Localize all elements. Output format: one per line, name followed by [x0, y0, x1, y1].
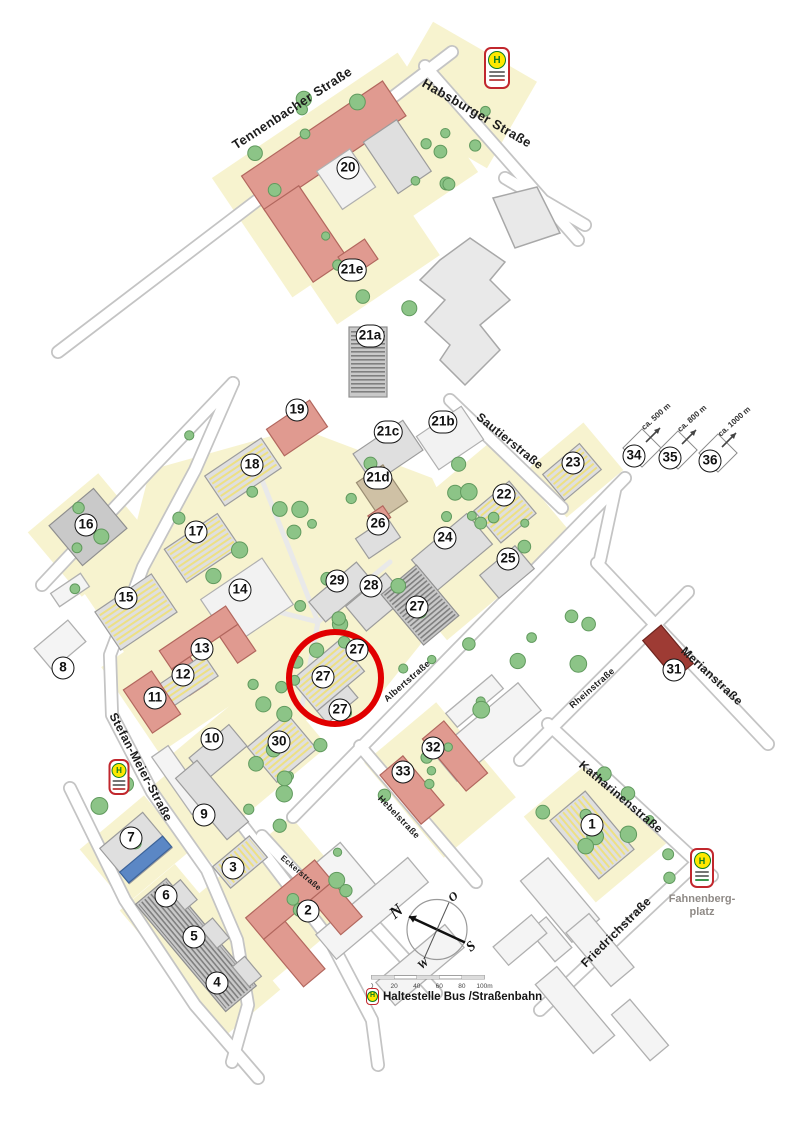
stop-habsburger: H	[484, 47, 510, 89]
building-marker-21a: 21a	[356, 325, 385, 348]
stop-h-icon: H	[112, 763, 127, 778]
building-marker-8: 8	[52, 657, 75, 680]
stop-h-icon: H	[488, 51, 506, 69]
building-marker-32: 32	[422, 737, 445, 760]
stop-h-icon: H	[694, 852, 711, 869]
building-marker-24: 24	[434, 527, 457, 550]
svg-text:S: S	[464, 939, 480, 956]
svg-text:N: N	[384, 900, 407, 924]
building-marker-36: 36	[699, 450, 722, 473]
stop-caption-line2: platz	[669, 906, 736, 919]
building-marker-6: 6	[155, 885, 178, 908]
svg-text:W: W	[414, 954, 432, 972]
building-marker-10: 10	[201, 728, 224, 751]
building-marker-14: 14	[229, 579, 252, 602]
building-marker-21e: 21e	[338, 259, 367, 282]
building-marker-29: 29	[326, 570, 349, 593]
building-marker-34: 34	[623, 445, 646, 468]
building-marker-21d: 21d	[363, 467, 392, 490]
stop-caption-fahnenbergplatz: Fahnenberg- platz	[669, 893, 736, 919]
building-marker-31: 31	[663, 659, 686, 682]
stop-sign-text-line	[113, 788, 126, 790]
stop-sign-text-line	[113, 784, 126, 786]
building-marker-5: 5	[183, 926, 206, 949]
compass-rose: NOSW	[377, 875, 497, 990]
campus-map: Tennenbacher StraßeHabsburger StraßeSaut…	[0, 0, 794, 1123]
building-marker-25: 25	[497, 548, 520, 571]
building-marker-11: 11	[144, 687, 167, 710]
building-marker-27: 27	[406, 596, 429, 619]
building-marker-35: 35	[659, 447, 682, 470]
building-marker-33: 33	[392, 761, 415, 784]
building-marker-3: 3	[222, 857, 245, 880]
building-marker-18: 18	[241, 454, 264, 477]
stop-fahnenbergplatz: H	[690, 848, 714, 888]
building-marker-27: 27	[346, 639, 369, 662]
bus-stop-icon: H	[366, 988, 379, 1005]
stop-sign-text-line	[695, 879, 709, 881]
building-marker-23: 23	[562, 452, 585, 475]
building-marker-30: 30	[268, 731, 291, 754]
stop-caption-line1: Fahnenberg-	[669, 893, 736, 906]
building-marker-4: 4	[206, 972, 229, 995]
stop-sign-text-line	[113, 780, 126, 782]
stop-sign-text-line	[489, 75, 505, 77]
building-marker-21b: 21b	[428, 411, 457, 434]
stop-sign-text-line	[695, 871, 709, 873]
building-marker-17: 17	[185, 521, 208, 544]
building-marker-28: 28	[360, 575, 383, 598]
legend-label: Haltestelle Bus /Straßenbahn	[383, 991, 542, 1003]
legend: H Haltestelle Bus /Straßenbahn	[366, 988, 542, 1005]
building-marker-9: 9	[193, 804, 216, 827]
stop-sign-text-line	[489, 71, 505, 73]
building-marker-7: 7	[120, 827, 143, 850]
building-marker-27: 27	[312, 666, 335, 689]
building-marker-2: 2	[297, 900, 320, 923]
building-marker-1: 1	[581, 814, 604, 837]
stop-sign-text-line	[489, 79, 505, 81]
building-marker-20: 20	[337, 157, 360, 180]
building-marker-19: 19	[286, 399, 309, 422]
stop-stefan-meier: H	[109, 759, 130, 795]
building-marker-22: 22	[493, 484, 516, 507]
building-marker-21c: 21c	[374, 421, 403, 444]
building-marker-27: 27	[329, 699, 352, 722]
building-marker-16: 16	[75, 514, 98, 537]
building-marker-15: 15	[115, 587, 138, 610]
building-marker-13: 13	[191, 638, 214, 661]
stop-sign-text-line	[695, 875, 709, 877]
building-marker-26: 26	[367, 513, 390, 536]
building-marker-12: 12	[172, 664, 195, 687]
svg-text:O: O	[445, 888, 461, 905]
